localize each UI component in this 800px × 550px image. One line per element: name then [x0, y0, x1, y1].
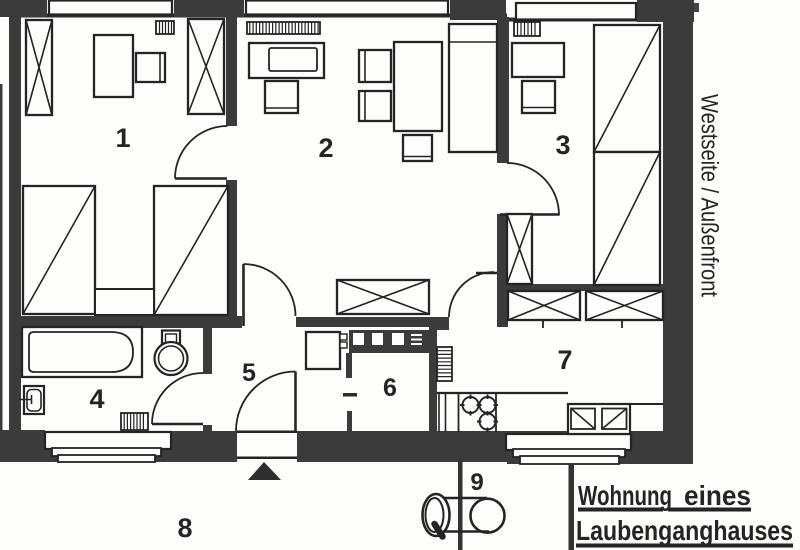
svg-text:eines: eines — [684, 480, 751, 511]
svg-text:2: 2 — [318, 133, 333, 163]
svg-text:8: 8 — [177, 513, 192, 543]
svg-text:1: 1 — [115, 123, 130, 153]
svg-text:4: 4 — [89, 384, 104, 414]
svg-text:Wohnung: Wohnung — [578, 480, 672, 511]
svg-text:6: 6 — [383, 374, 397, 402]
svg-text:7: 7 — [557, 345, 572, 375]
svg-text:Laubenganghauses: Laubenganghauses — [576, 515, 793, 546]
svg-text:3: 3 — [555, 130, 570, 160]
svg-text:Westseite / Außenfront: Westseite / Außenfront — [696, 94, 723, 297]
svg-text:5: 5 — [242, 359, 256, 387]
svg-text:9: 9 — [470, 469, 483, 496]
